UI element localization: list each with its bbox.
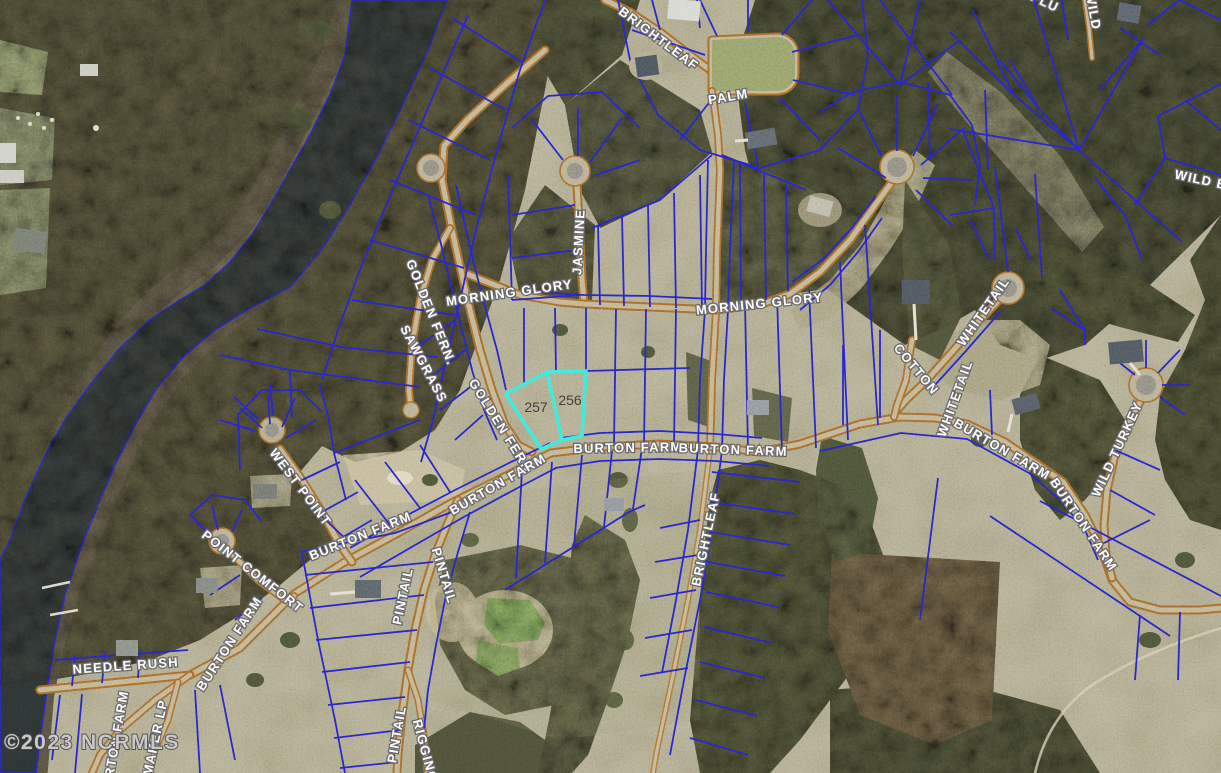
svg-text:©2023 NCRMLS: ©2023 NCRMLS [4, 731, 180, 754]
